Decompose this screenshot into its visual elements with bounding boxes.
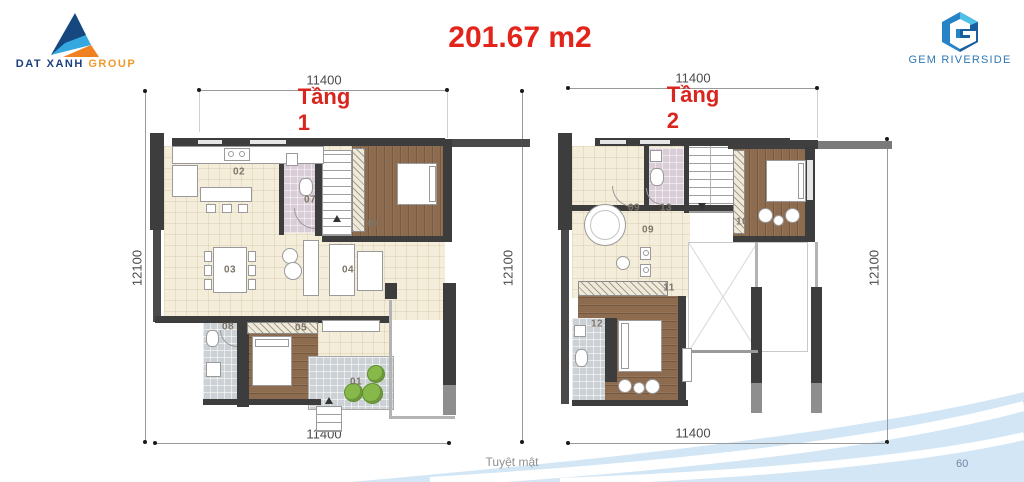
direction-arrow xyxy=(698,203,706,210)
dim-bottom-floor2: 11400 xyxy=(675,426,710,441)
sink xyxy=(286,153,298,166)
window xyxy=(600,140,626,144)
kitchen-cabinet xyxy=(172,165,198,197)
stool xyxy=(633,382,645,394)
coffee-table xyxy=(357,251,383,291)
toilet xyxy=(206,330,219,347)
vanity-bowl xyxy=(643,250,649,256)
room-label-08: 08 xyxy=(222,322,234,333)
page-number: 60 xyxy=(956,458,968,470)
wall xyxy=(572,400,688,406)
window xyxy=(198,140,222,144)
wall xyxy=(733,236,815,242)
dim-right-floor1: 12100 xyxy=(501,250,516,286)
dining-chair xyxy=(204,279,212,290)
direction-arrow xyxy=(325,397,333,404)
tv-console xyxy=(303,240,319,296)
wall xyxy=(443,139,452,242)
extension-line xyxy=(447,92,448,138)
wall xyxy=(150,133,164,230)
wall xyxy=(558,133,572,230)
dimension-dot xyxy=(153,441,157,445)
bar-stool xyxy=(238,204,248,213)
wardrobe xyxy=(578,281,668,296)
void-cross xyxy=(689,243,757,351)
burner xyxy=(239,151,245,157)
wall xyxy=(153,230,161,322)
staircase-floor2 xyxy=(688,142,734,213)
sink xyxy=(574,325,586,337)
kitchen-island xyxy=(200,187,252,202)
dimension-line xyxy=(155,443,449,444)
stool xyxy=(645,379,660,394)
wardrobe xyxy=(352,148,365,232)
extension-line xyxy=(199,92,200,132)
void-open-below xyxy=(688,242,808,352)
room-label-12: 12 xyxy=(591,319,603,330)
dining-chair xyxy=(248,251,256,262)
pillow xyxy=(429,166,436,202)
extension-line xyxy=(817,90,818,138)
gem-hexagon-icon xyxy=(940,10,980,54)
balcony-rail xyxy=(755,242,758,287)
door-label-09: 09 xyxy=(628,203,640,214)
room-label-09: 09 xyxy=(642,225,654,236)
floor2-title: Tầng 2 xyxy=(667,82,720,134)
datxanh-name: DAT XANH xyxy=(16,58,84,70)
direction-arrow xyxy=(333,215,341,222)
room-label-02: 02 xyxy=(233,167,245,178)
room-label-11: 11 xyxy=(663,283,675,294)
balcony-ledge xyxy=(682,348,692,382)
window xyxy=(640,140,670,144)
room-label-03: 03 xyxy=(224,265,236,276)
pillow xyxy=(621,323,629,369)
bar-stool xyxy=(222,204,232,213)
balcony-rail xyxy=(389,416,455,419)
wall xyxy=(684,140,689,213)
wall xyxy=(561,230,569,404)
column-base xyxy=(751,383,762,413)
dimension-dot xyxy=(447,441,451,445)
vanity-bowl xyxy=(643,267,649,273)
room-label-05: 05 xyxy=(295,323,307,334)
column xyxy=(751,287,762,383)
dimension-dot xyxy=(520,89,524,93)
washer xyxy=(206,362,221,377)
toilet xyxy=(575,349,588,367)
pillow xyxy=(798,163,804,199)
roof-overhang xyxy=(818,141,892,149)
toilet xyxy=(299,178,313,196)
stool xyxy=(618,379,632,393)
gem-logo-text: GEM RIVERSIDE xyxy=(896,54,1024,66)
dining-chair xyxy=(248,279,256,290)
column xyxy=(811,287,822,383)
burner xyxy=(228,151,234,157)
confidential-label: Tuyệt mật xyxy=(486,455,539,469)
datxanh-group: GROUP xyxy=(88,58,136,70)
entry-steps xyxy=(316,406,342,432)
floor1-title: Tầng 1 xyxy=(298,84,351,136)
datxanh-triangle-icon xyxy=(44,12,106,58)
room-label-04: 04 xyxy=(342,265,354,276)
room-label-10: 10 xyxy=(736,217,748,228)
balcony-rail xyxy=(815,242,818,287)
room-label-01: 01 xyxy=(350,377,362,388)
round-table-inner xyxy=(590,210,620,240)
dimension-dot xyxy=(143,89,147,93)
stool xyxy=(616,256,630,270)
dimension-dot xyxy=(143,440,147,444)
column xyxy=(385,283,397,299)
dining-chair xyxy=(248,265,256,276)
pillow xyxy=(255,339,289,347)
dimension-line xyxy=(568,443,887,444)
datxanh-logo-text: DAT XANH GROUP xyxy=(10,58,142,70)
bar-stool xyxy=(206,204,216,213)
wall xyxy=(322,236,452,242)
plant xyxy=(362,383,383,404)
room-label-13: 13 xyxy=(660,203,672,214)
void-edge xyxy=(688,350,758,353)
window xyxy=(807,160,813,200)
toilet xyxy=(650,168,664,186)
pouf xyxy=(284,262,302,280)
balcony-rail xyxy=(389,300,392,416)
column-base xyxy=(443,385,456,415)
room-label-07: 07 xyxy=(304,195,316,206)
cabinet xyxy=(322,320,380,332)
window xyxy=(250,140,286,144)
plant xyxy=(367,365,385,383)
column-base xyxy=(811,383,822,413)
dimension-dot xyxy=(520,440,524,444)
wall xyxy=(644,146,649,208)
wall xyxy=(203,399,321,405)
sink xyxy=(650,150,662,162)
wall xyxy=(605,318,617,382)
wardrobe xyxy=(247,322,318,334)
dimension-line xyxy=(887,140,888,443)
dining-chair xyxy=(204,251,212,262)
dim-left-floor1: 12100 xyxy=(130,250,145,286)
dining-chair xyxy=(204,265,212,276)
column xyxy=(443,283,456,385)
roof-overhang xyxy=(445,139,530,147)
slide-floorplan: DAT XANH GROUP GEM RIVERSIDE 201.67 m2 1… xyxy=(0,0,1024,482)
armchair xyxy=(785,208,800,223)
dimension-line xyxy=(145,92,146,442)
staircase-floor1 xyxy=(322,150,352,236)
area-title: 201.67 m2 xyxy=(448,21,591,55)
side-table xyxy=(773,215,784,226)
dimension-dot xyxy=(566,441,570,445)
room-label-06: 06 xyxy=(367,219,379,230)
stair-rail xyxy=(710,144,711,211)
dim-right-floor2: 12100 xyxy=(867,250,882,286)
armchair xyxy=(758,208,773,223)
dimension-dot xyxy=(566,86,570,90)
